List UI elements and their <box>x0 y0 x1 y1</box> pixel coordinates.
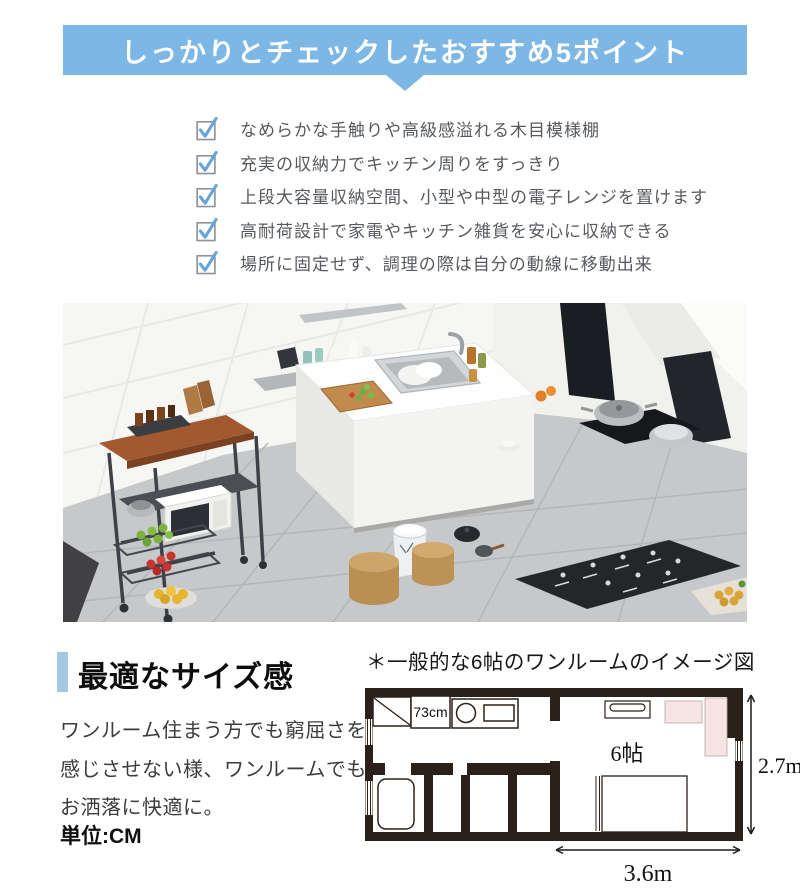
checkbox-check-icon <box>196 116 219 141</box>
width-dimension-label: 3.6m <box>624 861 673 887</box>
checklist-row: なめらかな手触りや高級感溢れる木目模様棚 <box>196 112 708 146</box>
size-section-heading: 最適なサイズ感 <box>78 652 294 696</box>
entry-closet <box>373 697 411 726</box>
island-sink-counter <box>296 334 534 533</box>
rack-width-label: 73cm <box>413 704 447 720</box>
kitchen-counter <box>452 699 518 728</box>
banner-pointer-triangle <box>386 75 424 91</box>
checklist-row: 充実の収納力でキッチン周りをすっきり <box>196 146 708 180</box>
unit-label: 単位:CM <box>60 820 142 850</box>
floorplan-diagram: 73cm 6帖 2.7m <box>365 683 800 890</box>
floorplan-title: ＊一般的な6帖のワンルームのイメージ図 <box>366 645 755 675</box>
size-body-line: 感じさせない様、ワンルームでも <box>60 751 370 790</box>
highlighted-furniture <box>665 698 727 756</box>
bed <box>602 776 687 832</box>
room-size-label: 6帖 <box>610 741 643 766</box>
height-dimension-label: 2.7m <box>758 753 800 778</box>
product-description-page: しっかりとチェックしたおすすめ5ポイント なめらかな手触りや高級感溢れる木目模様… <box>0 0 800 895</box>
checklist-item-label: 上段大容量収納空間、小型や中型の電子レンジを置けます <box>240 183 708 208</box>
size-body-line: ワンルーム住まう方でも窮屈さを <box>60 712 370 751</box>
checkbox-check-icon <box>196 217 219 242</box>
checklist-item-label: なめらかな手触りや高級感溢れる木目模様棚 <box>240 116 600 141</box>
points-banner: しっかりとチェックしたおすすめ5ポイント <box>63 25 747 75</box>
size-section-body: ワンルーム住まう方でも窮屈さを 感じさせない様、ワンルームでも お洒落に快適に。 <box>60 712 370 828</box>
checklist-row: 上段大容量収納空間、小型や中型の電子レンジを置けます <box>196 179 708 213</box>
checkbox-check-icon <box>196 183 219 208</box>
checklist-row: 高耐荷設計で家電やキッチン雑貨を安心に収納できる <box>196 213 708 247</box>
checklist-item-label: 充実の収納力でキッチン周りをすっきり <box>240 150 563 175</box>
checklist-item-label: 場所に固定せず、調理の際は自分の動線に移動出来 <box>240 250 653 275</box>
heading-accent-bar <box>57 652 68 692</box>
height-dimension-arrow <box>748 695 755 834</box>
points-banner-title: しっかりとチェックしたおすすめ5ポイント <box>121 31 689 70</box>
width-dimension-arrow <box>556 847 740 854</box>
bathtub <box>378 779 414 829</box>
checklist-item-label: 高耐荷設計で家電やキッチン雑貨を安心に収納できる <box>240 217 672 242</box>
checkbox-check-icon <box>196 150 219 175</box>
checkbox-check-icon <box>196 250 219 275</box>
tv-stand <box>605 701 650 718</box>
checklist: なめらかな手触りや高級感溢れる木目模様棚 充実の収納力でキッチン周りをすっきり … <box>196 112 708 280</box>
kitchen-photo <box>63 303 747 622</box>
checklist-row: 場所に固定せず、調理の際は自分の動線に移動出来 <box>196 246 708 280</box>
